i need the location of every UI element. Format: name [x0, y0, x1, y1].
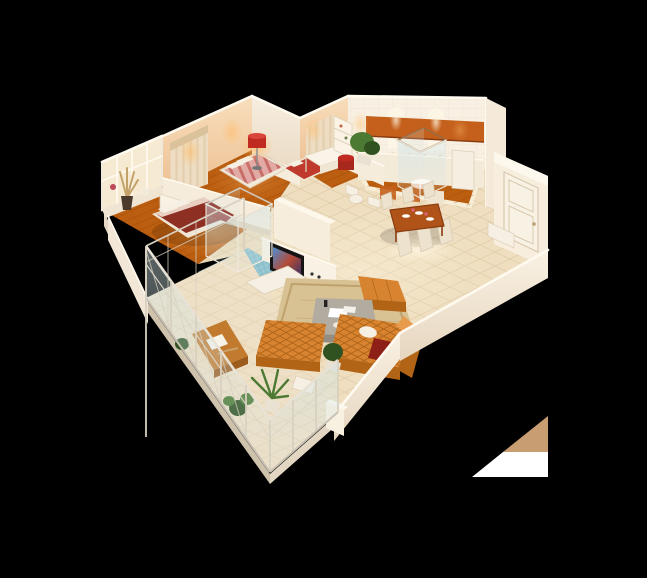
screenshot-root [0, 0, 647, 578]
door-knob [532, 222, 536, 226]
red-stool [338, 155, 354, 171]
apartment-render [0, 0, 647, 578]
fridge [452, 150, 474, 190]
sofa-bench [256, 320, 326, 372]
